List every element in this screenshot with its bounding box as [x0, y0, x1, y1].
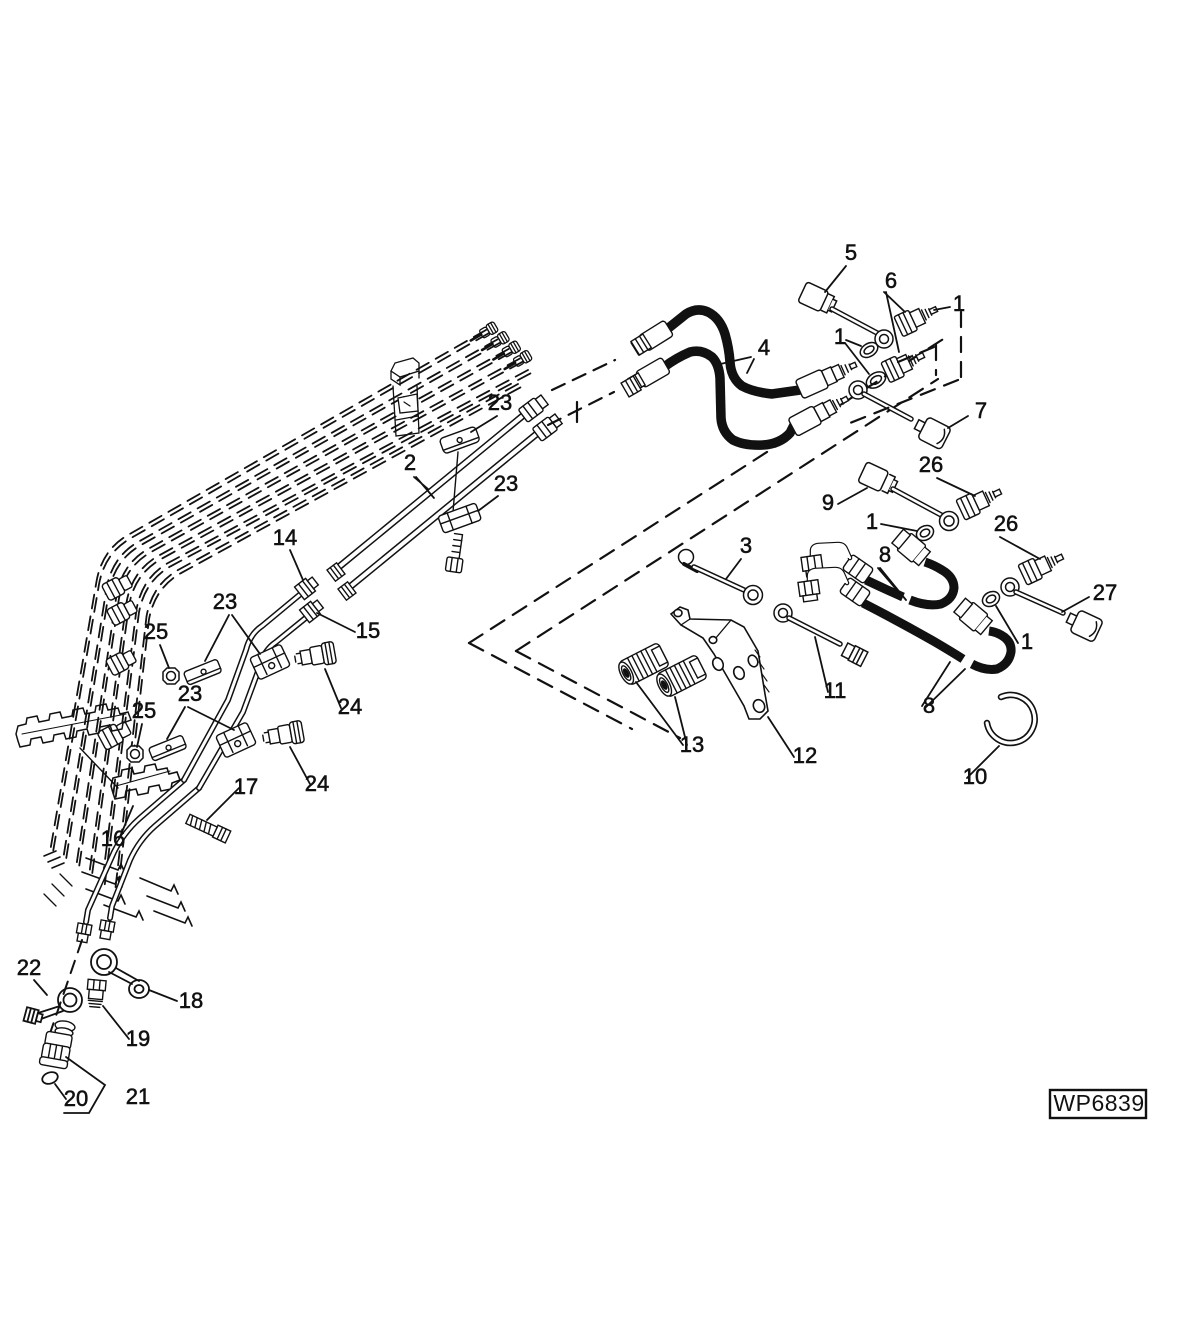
svg-text:4: 4 [758, 335, 770, 360]
svg-text:23: 23 [178, 681, 202, 706]
svg-text:23: 23 [213, 589, 237, 614]
svg-text:11: 11 [824, 678, 847, 703]
svg-text:5: 5 [845, 240, 857, 265]
svg-text:23: 23 [494, 471, 518, 496]
svg-text:26: 26 [919, 452, 943, 477]
svg-text:24: 24 [305, 771, 329, 796]
svg-text:24: 24 [338, 694, 362, 719]
svg-text:18: 18 [179, 988, 203, 1013]
svg-text:20: 20 [64, 1086, 88, 1111]
svg-text:8: 8 [923, 693, 935, 718]
svg-text:7: 7 [975, 398, 987, 423]
svg-text:WP6839: WP6839 [1053, 1090, 1144, 1116]
svg-text:13: 13 [680, 732, 704, 757]
svg-text:27: 27 [1093, 580, 1117, 605]
svg-text:16: 16 [101, 826, 125, 851]
svg-text:15: 15 [356, 618, 380, 643]
svg-text:6: 6 [885, 268, 897, 293]
svg-text:1: 1 [834, 324, 846, 349]
svg-text:1: 1 [953, 291, 965, 316]
svg-text:1: 1 [866, 509, 878, 534]
svg-text:2: 2 [404, 450, 416, 475]
svg-text:22: 22 [17, 955, 41, 980]
svg-text:10: 10 [963, 764, 987, 789]
svg-text:14: 14 [273, 525, 297, 550]
svg-text:3: 3 [740, 533, 752, 558]
svg-text:26: 26 [994, 511, 1018, 536]
svg-text:17: 17 [234, 774, 258, 799]
svg-text:19: 19 [126, 1026, 150, 1051]
svg-text:21: 21 [126, 1084, 150, 1109]
svg-text:12: 12 [793, 743, 817, 768]
svg-text:25: 25 [132, 698, 156, 723]
svg-text:8: 8 [879, 542, 891, 567]
svg-text:1: 1 [1021, 629, 1033, 654]
svg-text:25: 25 [144, 619, 168, 644]
svg-text:23: 23 [488, 390, 512, 415]
svg-text:9: 9 [822, 490, 834, 515]
